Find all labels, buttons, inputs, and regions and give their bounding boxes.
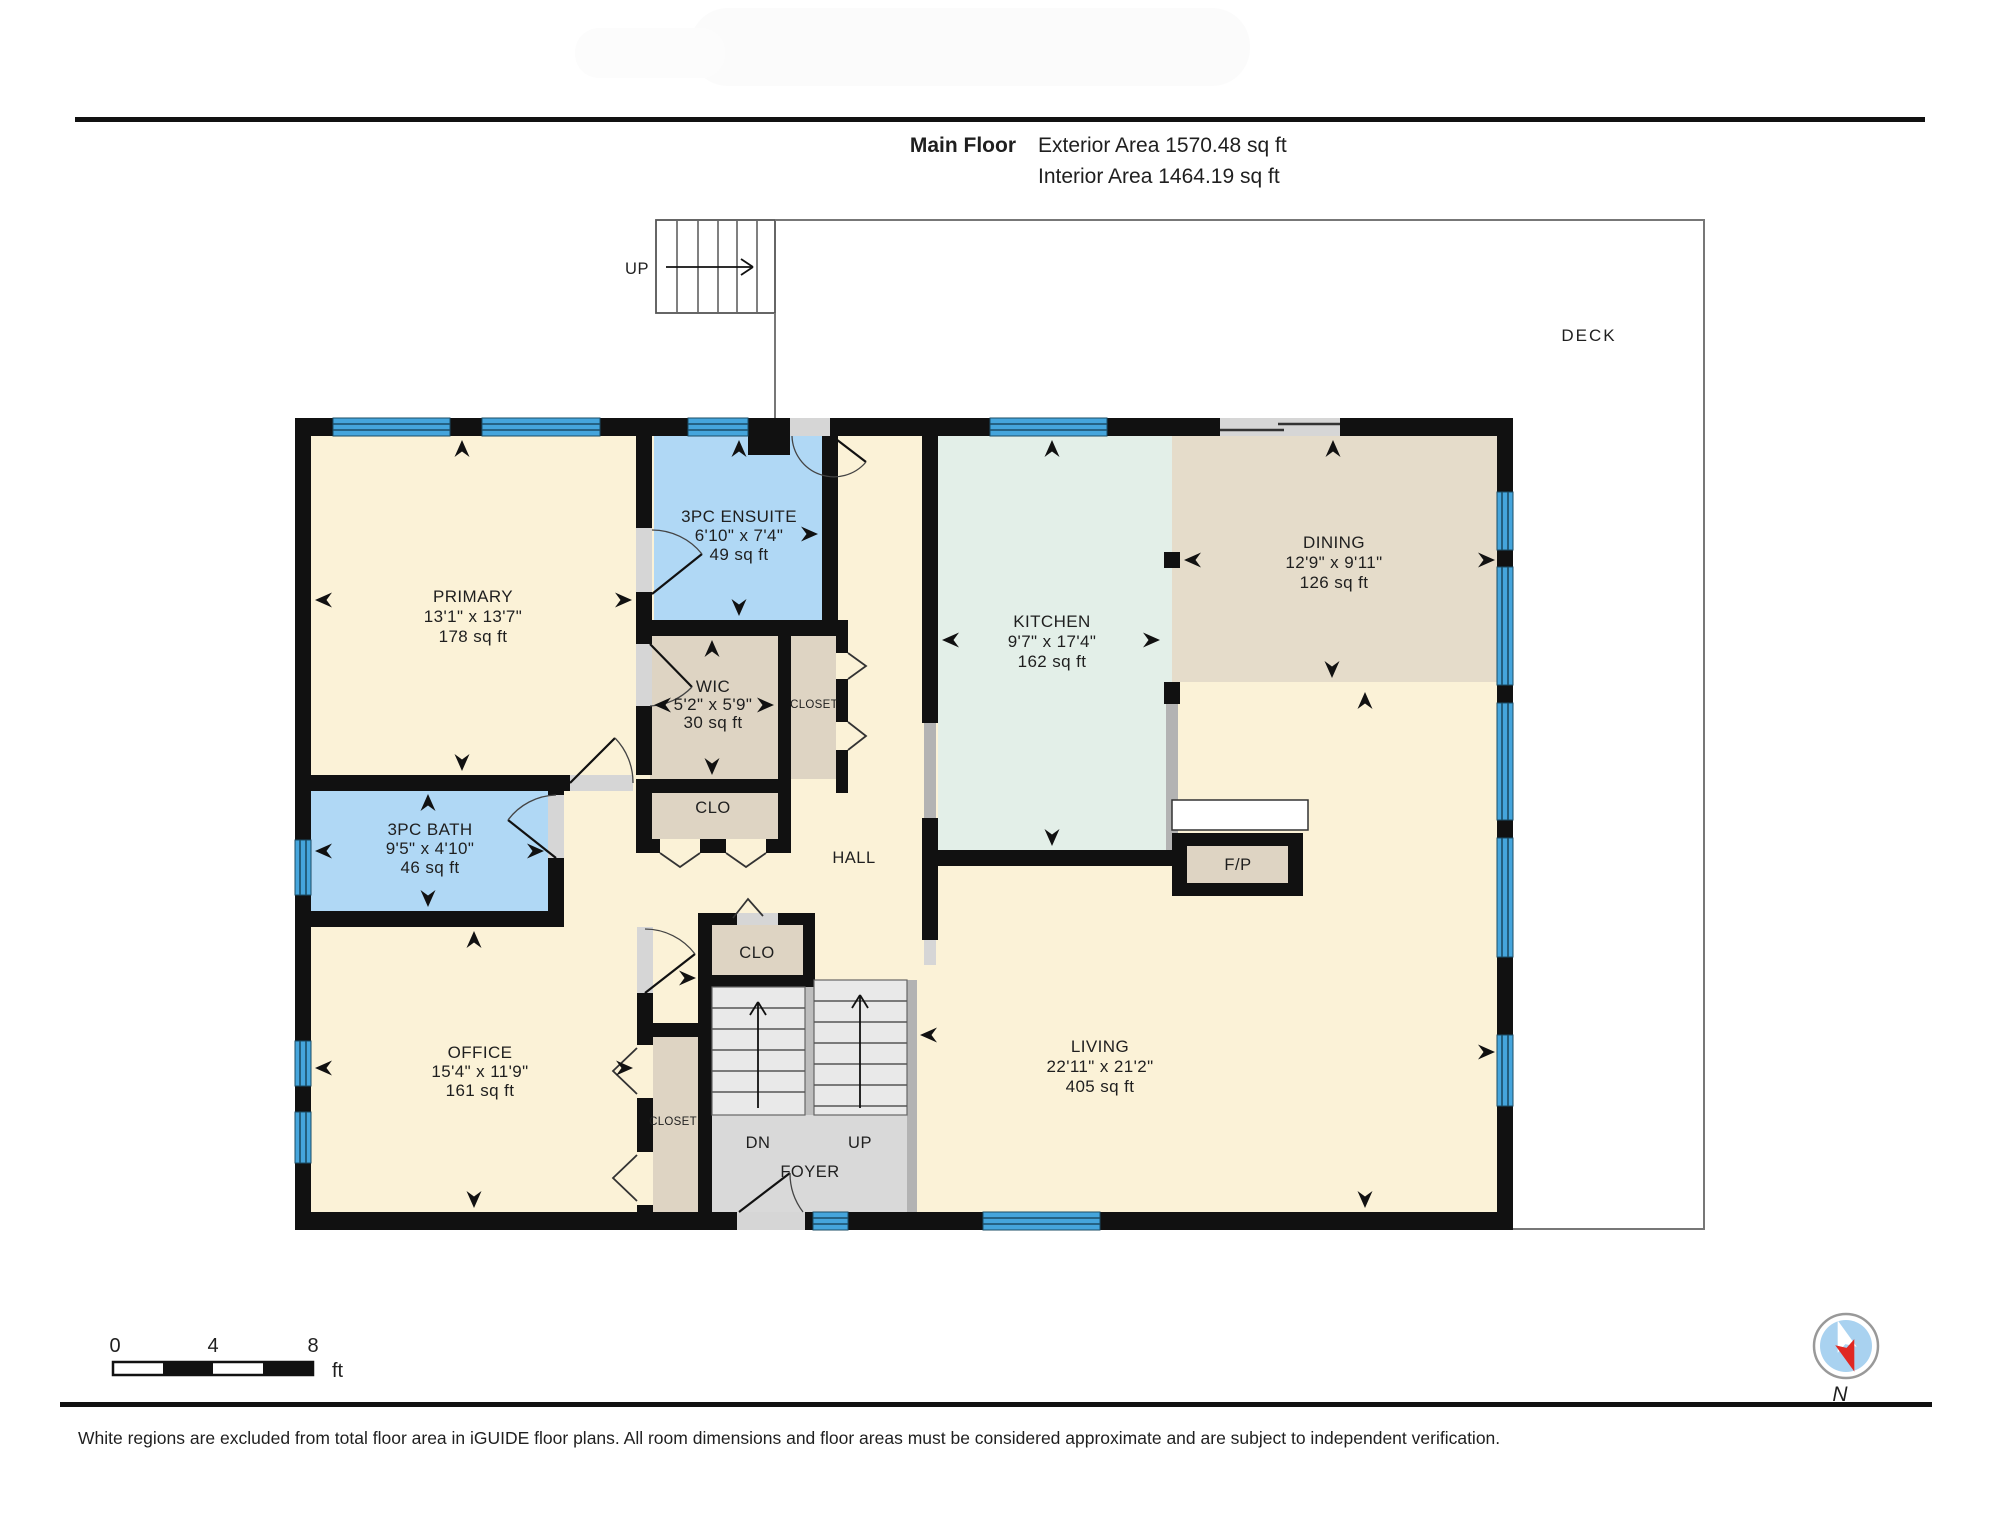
window (1497, 1035, 1513, 1106)
wall (700, 839, 726, 853)
sliding-door (1220, 418, 1340, 436)
room-label-office: OFFICE (448, 1043, 513, 1062)
wall (548, 858, 564, 911)
wall (922, 818, 938, 940)
wall (836, 620, 848, 653)
wall (637, 993, 653, 1045)
wall (636, 779, 791, 793)
wall (698, 975, 815, 987)
window (1497, 567, 1513, 685)
window (983, 1212, 1100, 1230)
compass-face (1820, 1320, 1872, 1372)
window (1497, 492, 1513, 550)
room-area-living: 405 sq ft (1066, 1077, 1135, 1096)
room-area-bath: 46 sq ft (401, 858, 460, 877)
window (688, 418, 748, 436)
wall (698, 913, 737, 925)
page-title: Main Floor (910, 134, 1016, 157)
door-sill (637, 927, 653, 993)
door-sill (737, 913, 778, 925)
door-sill (548, 795, 564, 858)
scale-bar: 0 4 8 ft (109, 1335, 343, 1382)
closet-office-label: CLOSET (649, 1116, 697, 1128)
room-label-wic: WIC (696, 677, 730, 696)
room-dims-kitchen: 9'7" x 17'4" (1008, 632, 1097, 651)
wall (922, 436, 938, 723)
wall (548, 791, 564, 795)
up-stairs-label: UP (625, 260, 649, 278)
room-dims-ensuite: 6'10" x 7'4" (695, 526, 784, 545)
interior-area-text: Interior Area 1464.19 sq ft (1038, 165, 1280, 188)
wall (698, 913, 712, 1230)
scale-tick-0: 0 (109, 1335, 120, 1357)
wall (766, 839, 791, 853)
floorplan-canvas: Main Floor Exterior Area 1570.48 sq ft I… (0, 0, 2000, 1518)
room-dims-dining: 12'9" x 9'11" (1285, 553, 1382, 572)
wall (778, 636, 791, 853)
foyer-label: FOYER (780, 1163, 839, 1181)
window (295, 840, 311, 895)
floorplan-page: Main Floor Exterior Area 1570.48 sq ft I… (0, 0, 2000, 1518)
dn-label: DN (746, 1134, 771, 1152)
closet-hall-label: CLOSET (790, 699, 838, 711)
room-dims-bath: 9'5" x 4'10" (386, 839, 475, 858)
window (482, 418, 600, 436)
disclaimer-text: White regions are excluded from total fl… (78, 1428, 1500, 1448)
scale-tick-4: 4 (207, 1335, 218, 1357)
hall-label: HALL (832, 849, 875, 867)
wall (636, 436, 652, 528)
room-label-ensuite: 3PC ENSUITE (681, 507, 797, 526)
scale-bar-seg1 (163, 1362, 213, 1375)
room-dims-primary: 13'1" x 13'7" (424, 607, 522, 626)
wall (637, 1205, 653, 1230)
scale-bar-seg2 (263, 1362, 313, 1375)
door-sill (790, 418, 830, 436)
window (333, 418, 450, 436)
header-divider (75, 117, 1925, 122)
foyer-halfwall (907, 980, 917, 1213)
window (990, 418, 1107, 436)
room-dims-living: 22'11" x 21'2" (1046, 1057, 1153, 1076)
scale-unit: ft (332, 1360, 344, 1382)
wall (636, 706, 652, 775)
wall (311, 775, 570, 791)
room-area-kitchen: 162 sq ft (1018, 652, 1087, 671)
room-label-dining: DINING (1303, 533, 1365, 552)
clo-foyer-label: CLO (739, 944, 774, 962)
window (1497, 838, 1513, 957)
kitchen-pony-wall (924, 723, 936, 818)
wall (636, 839, 660, 853)
wall (636, 592, 652, 644)
window (295, 1112, 311, 1163)
room-area-primary: 178 sq ft (439, 627, 508, 646)
wall (822, 436, 838, 620)
wall (922, 850, 1180, 866)
exterior-area-text: Exterior Area 1570.48 sq ft (1038, 134, 1287, 157)
room-area-ensuite: 49 sq ft (710, 545, 769, 564)
wall (311, 911, 564, 927)
deck-label: DECK (1561, 326, 1616, 345)
wall (636, 620, 848, 636)
window (295, 1041, 311, 1086)
watermark (575, 8, 1250, 86)
wall (748, 436, 790, 455)
door-sill (737, 1212, 805, 1230)
scale-tick-8: 8 (307, 1335, 318, 1357)
door-sill (636, 644, 652, 706)
wall (295, 1212, 1513, 1230)
room-area-dining: 126 sq ft (1300, 573, 1369, 592)
window (1497, 703, 1513, 820)
room-label-kitchen: KITCHEN (1013, 612, 1090, 631)
stair-divider (805, 980, 814, 1115)
door-sill (570, 775, 633, 791)
clo-wic-label: CLO (695, 799, 730, 817)
room-label-bath: 3PC BATH (387, 820, 472, 839)
footer-divider (60, 1402, 1932, 1407)
compass: N (1814, 1314, 1878, 1406)
wall (836, 750, 848, 793)
header: Main Floor Exterior Area 1570.48 sq ft I… (75, 117, 1925, 188)
kitchen-wall-sill (924, 940, 936, 965)
door-sill (636, 528, 652, 592)
room-dims-office: 15'4" x 11'9" (431, 1062, 528, 1081)
up-foyer-label: UP (848, 1134, 872, 1152)
fireplace-mantel (1172, 800, 1308, 830)
room-area-office: 161 sq ft (446, 1081, 515, 1100)
room-area-wic: 30 sq ft (684, 713, 743, 732)
wall (295, 418, 311, 1230)
window (813, 1212, 848, 1230)
wall (1164, 552, 1180, 568)
footer: White regions are excluded from total fl… (60, 1402, 1932, 1448)
wall (1164, 682, 1180, 704)
room-label-primary: PRIMARY (433, 587, 513, 606)
room-label-living: LIVING (1071, 1037, 1129, 1056)
room-dims-wic: 5'2" x 5'9" (674, 695, 753, 714)
fireplace-label: F/P (1224, 856, 1251, 874)
